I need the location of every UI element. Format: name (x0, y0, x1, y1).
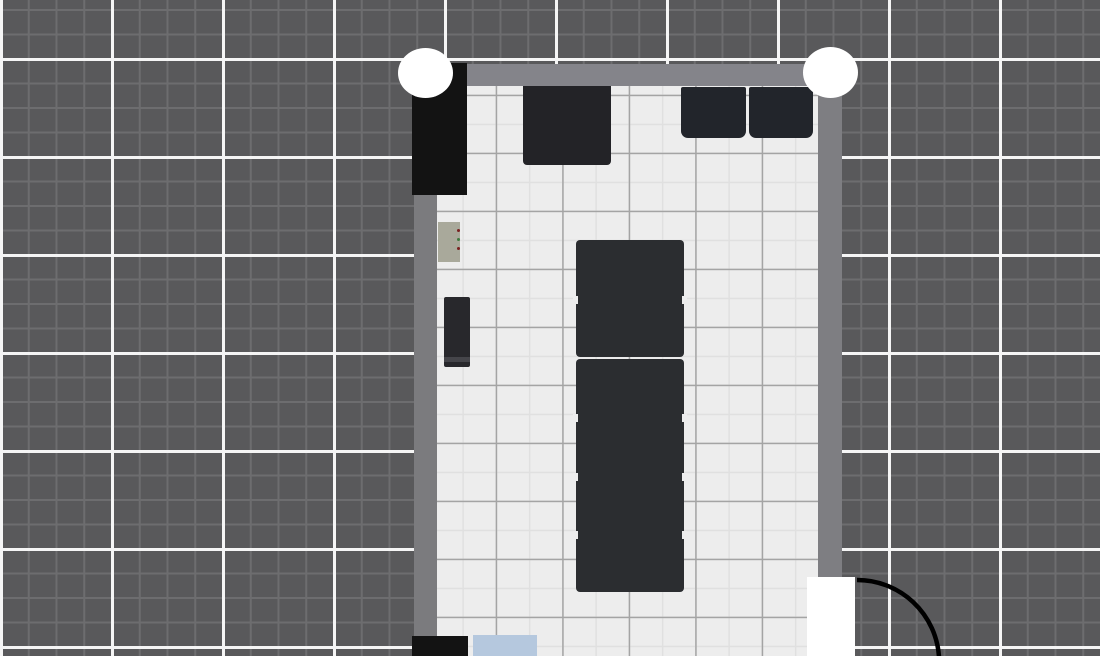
panel-led-red-2 (457, 247, 460, 250)
panel-led-red-1 (457, 229, 460, 232)
door-panel[interactable] (807, 577, 855, 656)
door-swing-arc-path (857, 580, 939, 656)
seat-right-1[interactable] (681, 87, 746, 138)
table-gap-notch (573, 296, 578, 304)
seat-right-2[interactable] (749, 87, 813, 138)
table-bottom-blue[interactable] (473, 635, 537, 656)
table-gap-notch (682, 531, 687, 539)
cabinet-small[interactable] (444, 297, 470, 367)
radiator-panel[interactable] (438, 222, 460, 262)
table-gap-notch (682, 414, 687, 422)
table-gap-notch (573, 414, 578, 422)
table-gap-notch (682, 473, 687, 481)
table-top-wall[interactable] (523, 86, 611, 165)
table-block-upper[interactable] (576, 240, 684, 357)
table-gap-notch (573, 473, 578, 481)
table-gap-notch (682, 296, 687, 304)
corner-marker-left[interactable] (398, 48, 453, 98)
cabinet-bottom-black[interactable] (412, 636, 468, 656)
table-gap-notch (573, 531, 578, 539)
table-block-lower[interactable] (576, 359, 684, 592)
wall-top[interactable] (414, 64, 842, 86)
corner-marker-right[interactable] (803, 47, 858, 98)
floorplan-canvas (0, 0, 1100, 656)
cabinet-base-strip (444, 357, 470, 362)
wall-right[interactable] (818, 64, 842, 577)
panel-led-green (457, 238, 460, 241)
